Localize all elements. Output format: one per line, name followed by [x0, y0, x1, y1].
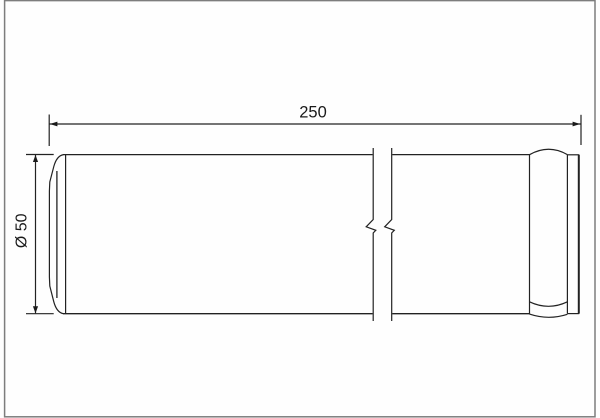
svg-text:250: 250 [299, 104, 327, 122]
svg-text:Ø 50: Ø 50 [14, 213, 31, 248]
